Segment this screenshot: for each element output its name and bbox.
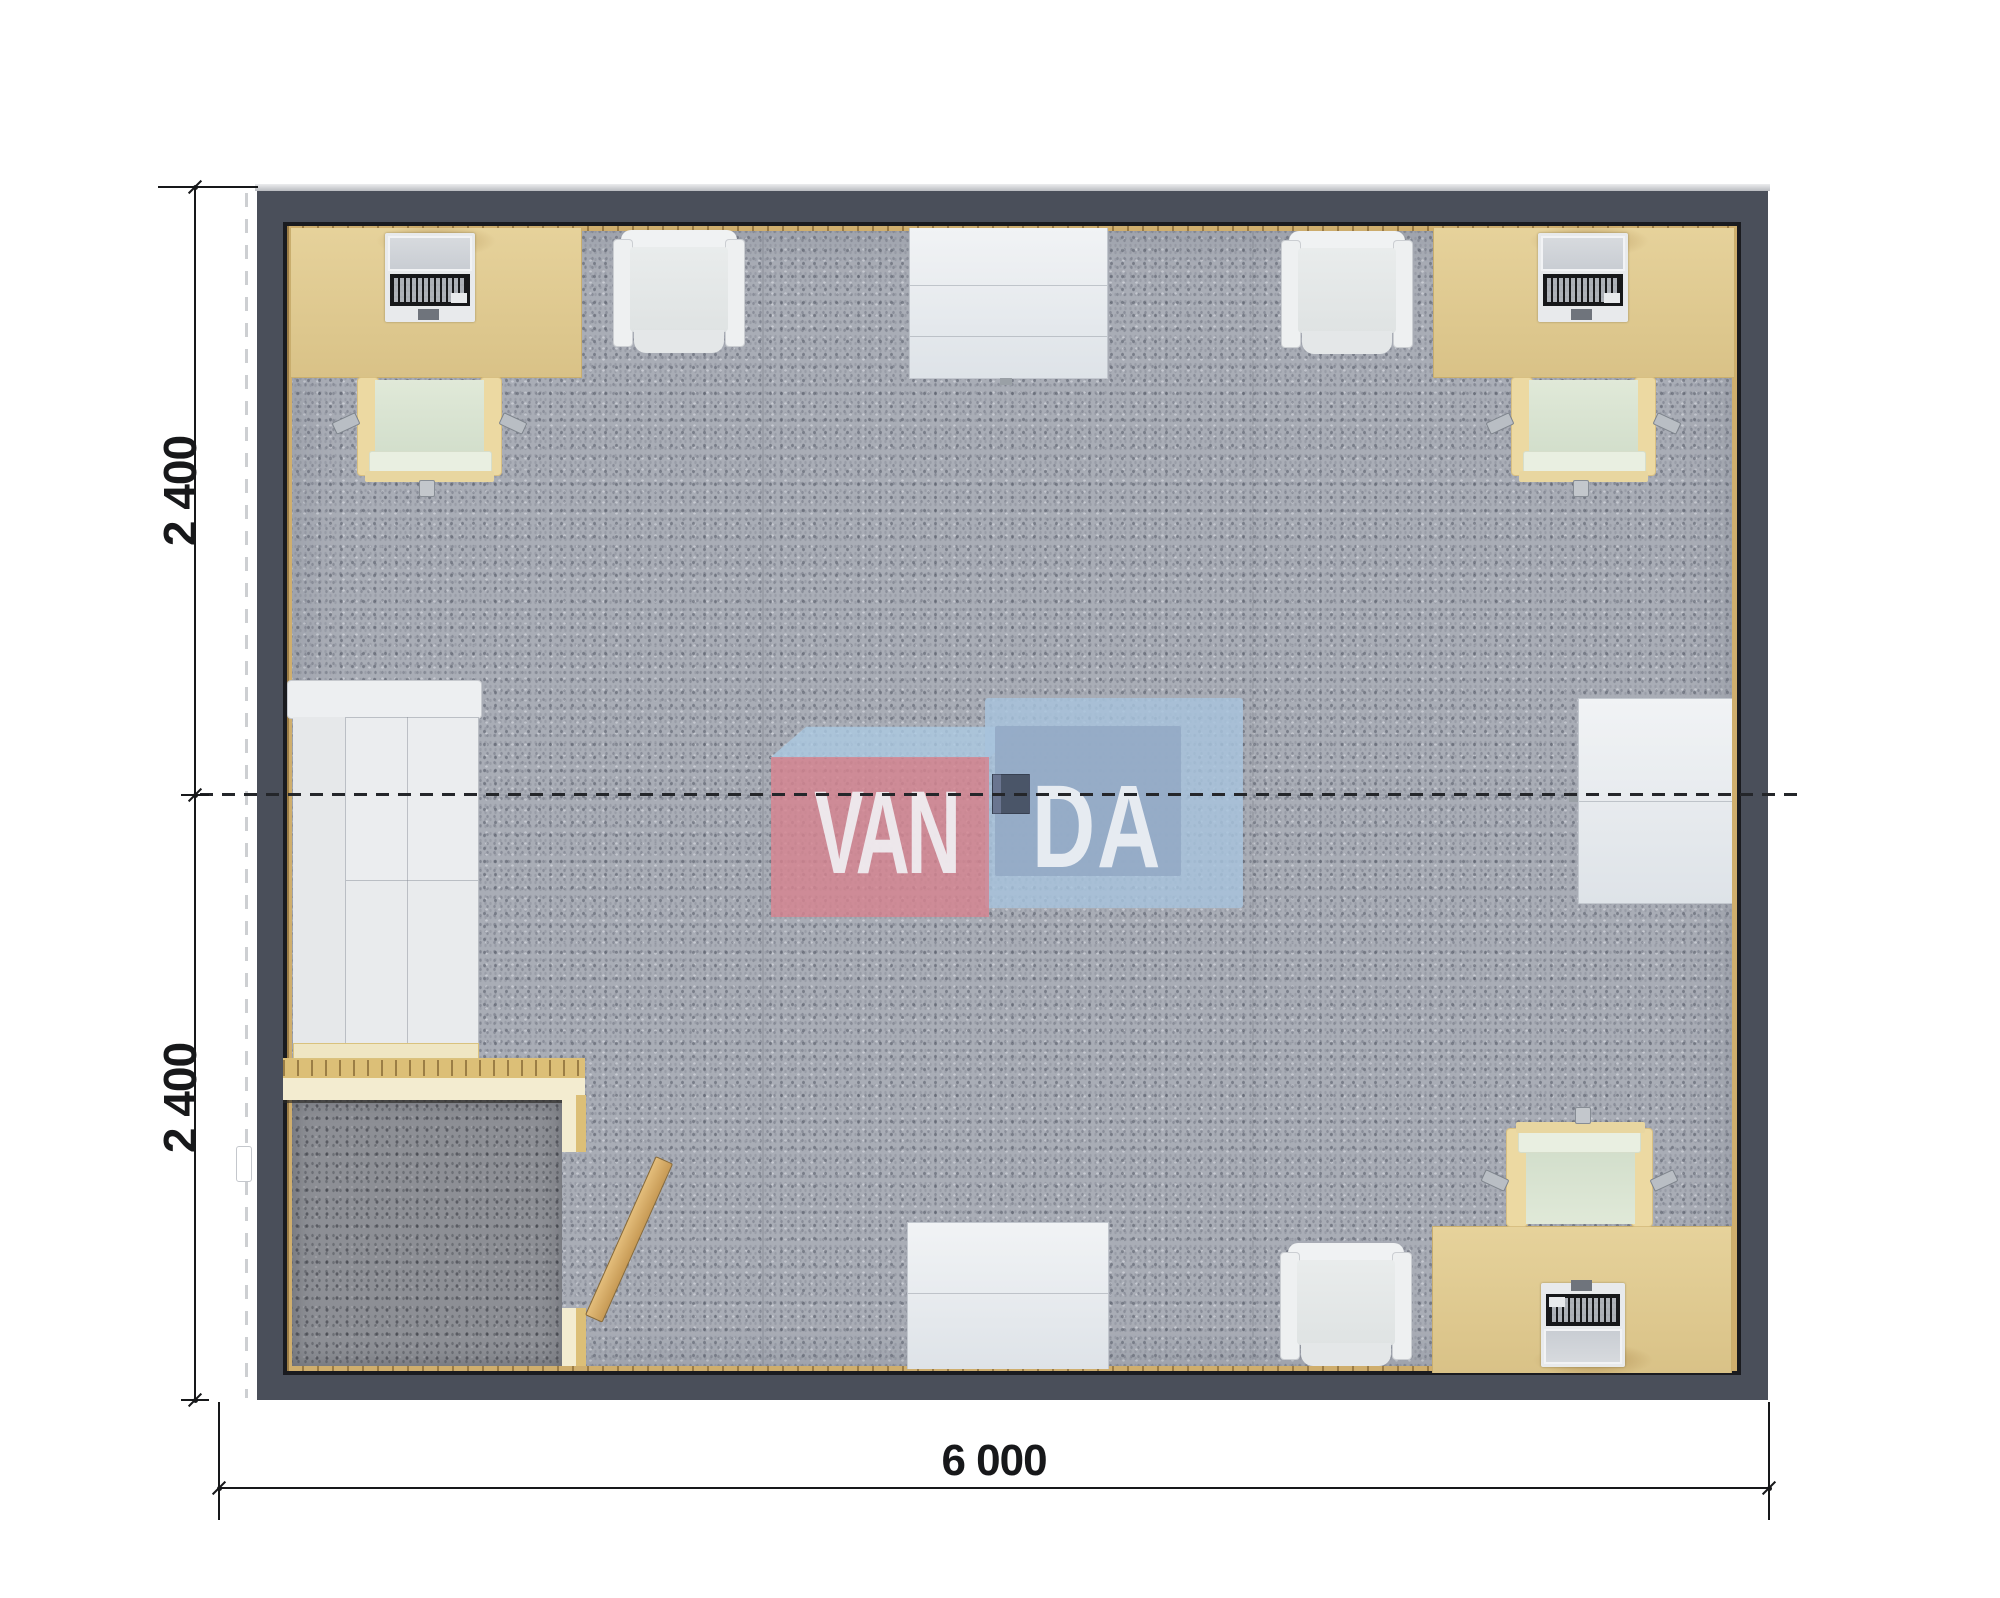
laptop-key-notch — [451, 293, 467, 303]
table-bottom-center — [907, 1222, 1109, 1369]
laptop-screen — [1544, 1329, 1622, 1364]
laptop-bottom-right — [1541, 1283, 1625, 1367]
dim-tick — [1767, 1486, 1772, 1491]
task-chair-top-right — [1511, 377, 1656, 482]
chair-seat — [1526, 1149, 1635, 1224]
roof-edge-highlight — [255, 184, 1770, 191]
entrance-door-handle — [236, 1146, 252, 1182]
extension-line-bottom-right — [1768, 1402, 1770, 1520]
vestibule-partition-wall-right-upper — [562, 1095, 586, 1152]
watermark-text-van: VAN — [807, 756, 965, 909]
laptop-keyboard — [1546, 1294, 1620, 1326]
laptop-trackpad — [418, 309, 439, 320]
armchair-top-right — [1281, 231, 1413, 357]
armchair-front-edge — [634, 330, 724, 353]
laptop-screen — [1541, 236, 1625, 271]
floor-panel-seam — [1252, 231, 1254, 1366]
screw-marks — [283, 1060, 585, 1076]
armchair-bottom — [1280, 1243, 1412, 1368]
sofa-backrest — [293, 717, 346, 1043]
sofa-left-wall — [287, 680, 490, 1057]
chair-seat — [1529, 380, 1638, 455]
laptop-keyboard — [1543, 274, 1623, 306]
chair-caster — [1575, 1107, 1591, 1124]
sofa-base — [293, 1043, 479, 1059]
armchair-seat — [630, 247, 728, 332]
dim-tick — [193, 185, 198, 190]
dimension-label-depth-bottom: 2 400 — [158, 1018, 202, 1178]
armchair-armrest — [1393, 240, 1413, 348]
floor-plan-canvas: 2 400 2 400 6 000 VAN DA — [0, 0, 2000, 1598]
dim-tick — [193, 793, 198, 798]
sofa-seat-cushion — [345, 717, 479, 882]
task-chair-top-left — [357, 377, 502, 482]
dim-tick — [193, 1398, 198, 1403]
vestibule-partition-wall-top — [283, 1058, 585, 1103]
table-seam — [910, 285, 1107, 286]
chair-back-cushion — [369, 451, 492, 473]
armchair-armrest — [1392, 1252, 1412, 1360]
laptop-top-left — [385, 233, 475, 322]
chair-back-cushion — [1518, 1131, 1641, 1153]
table-right-wall — [1578, 698, 1732, 904]
chair-caster — [1573, 480, 1589, 497]
armchair-front-edge — [1302, 331, 1392, 354]
chair-seat — [375, 380, 484, 455]
laptop-top-right — [1538, 233, 1628, 322]
armchair-armrest — [725, 239, 745, 347]
sofa-armrest — [287, 680, 482, 719]
table-seam — [1579, 801, 1732, 802]
sofa-cushion-seam — [407, 717, 408, 1043]
dim-tick — [217, 1486, 222, 1491]
laptop-trackpad — [1571, 309, 1592, 320]
chair-back-cushion — [1523, 451, 1646, 473]
laptop-screen — [388, 236, 472, 271]
laptop-key-notch — [1604, 293, 1620, 303]
dimension-label-depth-top: 2 400 — [158, 411, 202, 571]
vestibule-carpet-floor — [292, 1100, 562, 1366]
table-seam — [910, 336, 1107, 337]
module-split-dashed-line — [200, 793, 1798, 796]
armchair-seat — [1297, 1260, 1395, 1345]
task-chair-bottom-right — [1506, 1119, 1653, 1227]
laptop-key-notch — [1549, 1297, 1565, 1307]
armchair-top-left — [613, 230, 745, 356]
sofa-seat-cushion — [345, 880, 479, 1045]
table-seam — [908, 1293, 1108, 1294]
chair-caster — [419, 480, 435, 497]
vestibule-partition-wall-right-lower — [562, 1308, 586, 1366]
dimension-label-width: 6 000 — [894, 1438, 1094, 1484]
watermark-text-da: DA — [1031, 750, 1163, 903]
laptop-trackpad — [1571, 1280, 1592, 1291]
horizontal-dimension-line — [219, 1487, 1770, 1489]
armchair-seat — [1298, 248, 1396, 333]
extension-line-bottom-left — [218, 1402, 220, 1520]
armchair-front-edge — [1301, 1343, 1391, 1366]
table-foot — [1000, 378, 1012, 385]
laptop-keyboard — [390, 274, 470, 306]
floor-panel-seam — [762, 231, 764, 1366]
table-top-center — [909, 228, 1108, 379]
